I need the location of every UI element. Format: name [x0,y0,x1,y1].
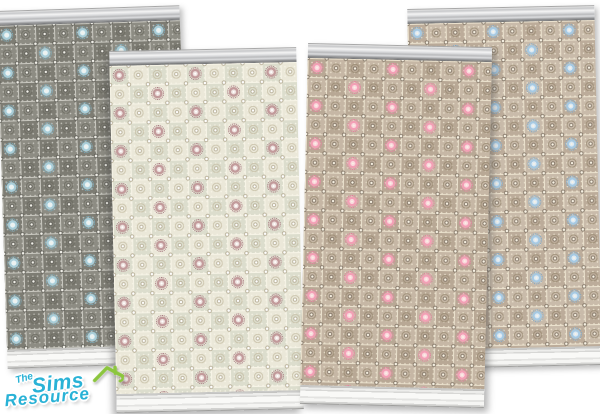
flower-accent [307,213,320,226]
flower-accent [345,195,358,208]
flower-accent [232,313,245,326]
flower-accent [46,274,59,287]
flower-accent [40,84,53,97]
tsr-wallpaper-preview-image: The Sims Resource [0,0,600,414]
flower-accent [39,46,52,59]
flower-accent [270,331,283,344]
flower-accent [192,219,205,232]
flower-accent [490,177,503,190]
flower-accent [190,143,203,156]
flower-accent [228,123,241,136]
flower-accent [418,349,431,362]
flower-accent [84,292,97,305]
flower-accent [45,236,58,249]
flower-accent [115,183,128,196]
flower-accent [152,24,165,37]
flower-accent [230,237,243,250]
flower-accent [1,66,14,79]
flower-accent [530,271,543,284]
flower-accent [117,259,130,272]
flower-accent [42,160,55,173]
flower-accent [492,291,505,304]
tsr-logo: The Sims Resource [3,368,127,407]
flower-accent [386,63,399,76]
flower-accent [347,119,360,132]
flower-accent [379,367,392,380]
flower-accent [0,28,13,41]
flower-accent [563,61,576,74]
flower-accent [229,199,242,212]
flower-accent [563,23,576,36]
flower-accent [342,347,355,360]
flower-accent [461,140,474,153]
flower-accent [462,102,475,115]
flower-accent [526,81,539,94]
flower-accent [421,197,434,210]
flower-accent [531,309,544,322]
flower-accent [346,157,359,170]
flower-accent [117,297,130,310]
flower-accent [525,43,538,56]
flower-accent [77,64,90,77]
flower-accent [487,25,500,38]
wallpaper-swatch-tan-pink [300,43,492,408]
flower-accent [41,122,54,135]
flower-accent [420,273,433,286]
wallpaper-swatch-cream-mauve [109,47,304,413]
flower-accent [460,178,473,191]
flower-accent [113,69,126,82]
flower-accent [10,332,23,345]
flower-accent [269,293,282,306]
flower-accent [386,101,399,114]
wallpaper-pattern [110,62,304,394]
flower-accent [459,216,472,229]
flower-accent [83,254,96,267]
flower-accent [151,87,164,100]
flower-accent [268,217,281,230]
flower-accent [304,365,317,378]
flower-accent [5,180,18,193]
flower-accent [157,353,170,366]
flower-accent [569,327,582,340]
flower-accent [85,330,98,343]
flower-accent [455,368,468,381]
flower-accent [153,163,166,176]
flower-accent [343,309,356,322]
flower-accent [194,333,207,346]
wallpaper-pattern [300,58,491,389]
flower-accent [310,99,323,112]
flower-accent [189,67,202,80]
flower-accent [8,294,21,307]
flower-accent [491,253,504,266]
flower-accent [4,142,17,155]
flower-accent [564,99,577,112]
flower-accent [116,221,129,234]
flower-accent [456,330,469,343]
flower-accent [527,157,540,170]
flower-accent [527,119,540,132]
flower-accent [7,256,20,269]
flower-accent [380,329,393,342]
flower-accent [47,312,60,325]
flower-accent [233,351,246,364]
flower-accent [309,137,322,150]
flower-accent [154,239,167,252]
flower-accent [306,251,319,264]
flower-accent [424,83,437,96]
flower-accent [528,195,541,208]
flower-accent [419,311,432,324]
flower-accent [191,181,204,194]
flower-accent [423,121,436,134]
flower-accent [155,277,168,290]
flower-accent [567,251,580,264]
flower-accent [304,327,317,340]
flower-accent [81,178,94,191]
flower-accent [422,159,435,172]
flower-accent [78,102,91,115]
flower-accent [82,216,95,229]
flower-accent [565,137,578,150]
flower-accent [310,61,323,74]
flower-accent [195,371,208,384]
flower-accent [385,139,398,152]
flower-accent [266,141,279,154]
flower-accent [383,215,396,228]
flower-accent [265,65,278,78]
flower-accent [156,315,169,328]
flower-accent [271,369,284,382]
flower-accent [193,295,206,308]
flower-accent [344,271,357,284]
flower-accent [227,85,240,98]
flower-accent [113,107,126,120]
flower-accent [381,291,394,304]
flower-accent [462,64,475,77]
flower-accent [489,139,502,152]
flower-accent [267,179,280,192]
flower-accent [153,201,166,214]
flower-accent [493,329,506,342]
flower-accent [265,103,278,116]
flower-accent [348,81,361,94]
flower-accent [458,254,471,267]
flower-accent [421,235,434,248]
flower-accent [6,218,19,231]
flower-accent [529,233,542,246]
flower-accent [114,145,127,158]
flower-accent [2,104,15,117]
flower-accent [566,175,579,188]
flower-accent [308,175,321,188]
flower-accent [43,198,56,211]
flower-accent [491,215,504,228]
flower-accent [229,161,242,174]
flower-accent [80,140,93,153]
flower-accent [384,177,397,190]
flower-accent [382,253,395,266]
tsr-logo-text-resource: Resource [4,382,127,410]
flower-accent [567,213,580,226]
flower-accent [231,275,244,288]
flower-accent [457,292,470,305]
flower-accent [411,27,424,40]
baseboard [116,390,303,413]
flower-accent [345,233,358,246]
flower-accent [152,125,165,138]
flower-accent [189,105,202,118]
flower-accent [118,335,131,348]
flower-accent [568,289,581,302]
flower-accent [305,289,318,302]
flower-accent [76,26,89,39]
flower-accent [193,257,206,270]
flower-accent [269,255,282,268]
